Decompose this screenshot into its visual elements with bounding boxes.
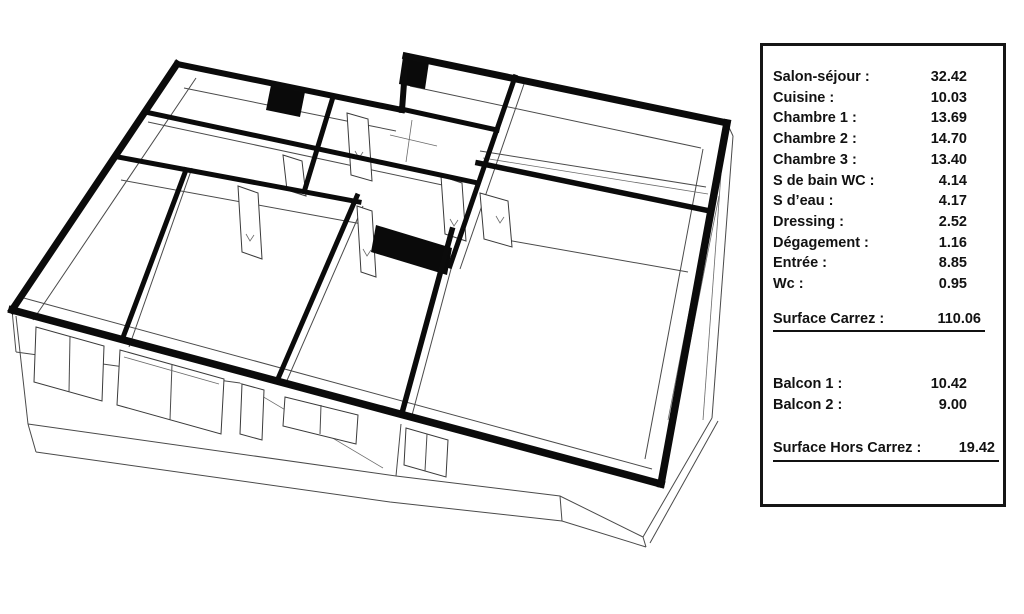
room-label: S de bain WC : xyxy=(773,171,875,192)
room-label: Dégagement : xyxy=(773,233,869,254)
room-area: 1.16 xyxy=(939,233,967,254)
area-row-balcon1: Balcon 1 : 10.42 xyxy=(773,374,1003,395)
room-area: 13.69 xyxy=(931,108,967,129)
total-area: 19.42 xyxy=(959,438,995,459)
door-entree xyxy=(347,113,372,181)
room-area: 8.85 xyxy=(939,253,967,274)
room-label: Cuisine : xyxy=(773,88,834,109)
room-area: 9.00 xyxy=(939,395,967,416)
room-area: 10.03 xyxy=(931,88,967,109)
room-label: Dressing : xyxy=(773,212,844,233)
room-area: 14.70 xyxy=(931,129,967,150)
room-area: 10.42 xyxy=(931,374,967,395)
area-row-balcon2: Balcon 2 : 9.00 xyxy=(773,395,1003,416)
area-row-sdeau: S d’eau : 4.17 xyxy=(773,191,1003,212)
room-label: Chambre 1 : xyxy=(773,108,857,129)
window-bay-5 xyxy=(404,428,448,477)
surface-carrez-total-row: Surface Carrez : 110.06 xyxy=(773,309,985,333)
room-area: 2.52 xyxy=(939,212,967,233)
room-label: S d’eau : xyxy=(773,191,833,212)
total-label: Surface Carrez : xyxy=(773,309,884,330)
area-row-degagement: Dégagement : 1.16 xyxy=(773,233,1003,254)
room-label: Entrée : xyxy=(773,253,827,274)
area-row-cuisine: Cuisine : 10.03 xyxy=(773,88,1003,109)
room-area: 13.40 xyxy=(931,150,967,171)
area-row-chambre1: Chambre 1 : 13.69 xyxy=(773,108,1003,129)
area-row-dressing: Dressing : 2.52 xyxy=(773,212,1003,233)
floorplan-3d-drawing xyxy=(0,0,760,614)
area-row-entree: Entrée : 8.85 xyxy=(773,253,1003,274)
room-label: Chambre 2 : xyxy=(773,129,857,150)
room-area: 4.17 xyxy=(939,191,967,212)
surface-hors-carrez-total-row: Surface Hors Carrez : 19.42 xyxy=(773,438,999,462)
door-salon xyxy=(480,193,512,247)
room-label: Balcon 2 : xyxy=(773,395,842,416)
room-area: 32.42 xyxy=(931,67,967,88)
room-label: Chambre 3 : xyxy=(773,150,857,171)
total-area: 110.06 xyxy=(937,309,981,330)
area-row-chambre2: Chambre 2 : 14.70 xyxy=(773,129,1003,150)
room-label: Salon-séjour : xyxy=(773,67,870,88)
total-label: Surface Hors Carrez : xyxy=(773,438,921,459)
balcony-outlines xyxy=(12,123,733,547)
room-area: 0.95 xyxy=(939,274,967,295)
area-row-chambre3: Chambre 3 : 13.40 xyxy=(773,150,1003,171)
floorplan-page: Salon-séjour : 32.42 Cuisine : 10.03 Cha… xyxy=(0,0,1024,614)
window-bay-1 xyxy=(34,327,104,401)
room-label: Balcon 1 : xyxy=(773,374,842,395)
area-row-wc: Wc : 0.95 xyxy=(773,274,1003,295)
area-row-sdb: S de bain WC : 4.14 xyxy=(773,171,1003,192)
surface-table-panel: Salon-séjour : 32.42 Cuisine : 10.03 Cha… xyxy=(760,43,1006,507)
room-area: 4.14 xyxy=(939,171,967,192)
door-chambre-left xyxy=(238,186,262,259)
window-bay-4 xyxy=(283,397,358,444)
room-label: Wc : xyxy=(773,274,804,295)
window-bay-3 xyxy=(240,384,264,440)
area-row-salon: Salon-séjour : 32.42 xyxy=(773,67,1003,88)
